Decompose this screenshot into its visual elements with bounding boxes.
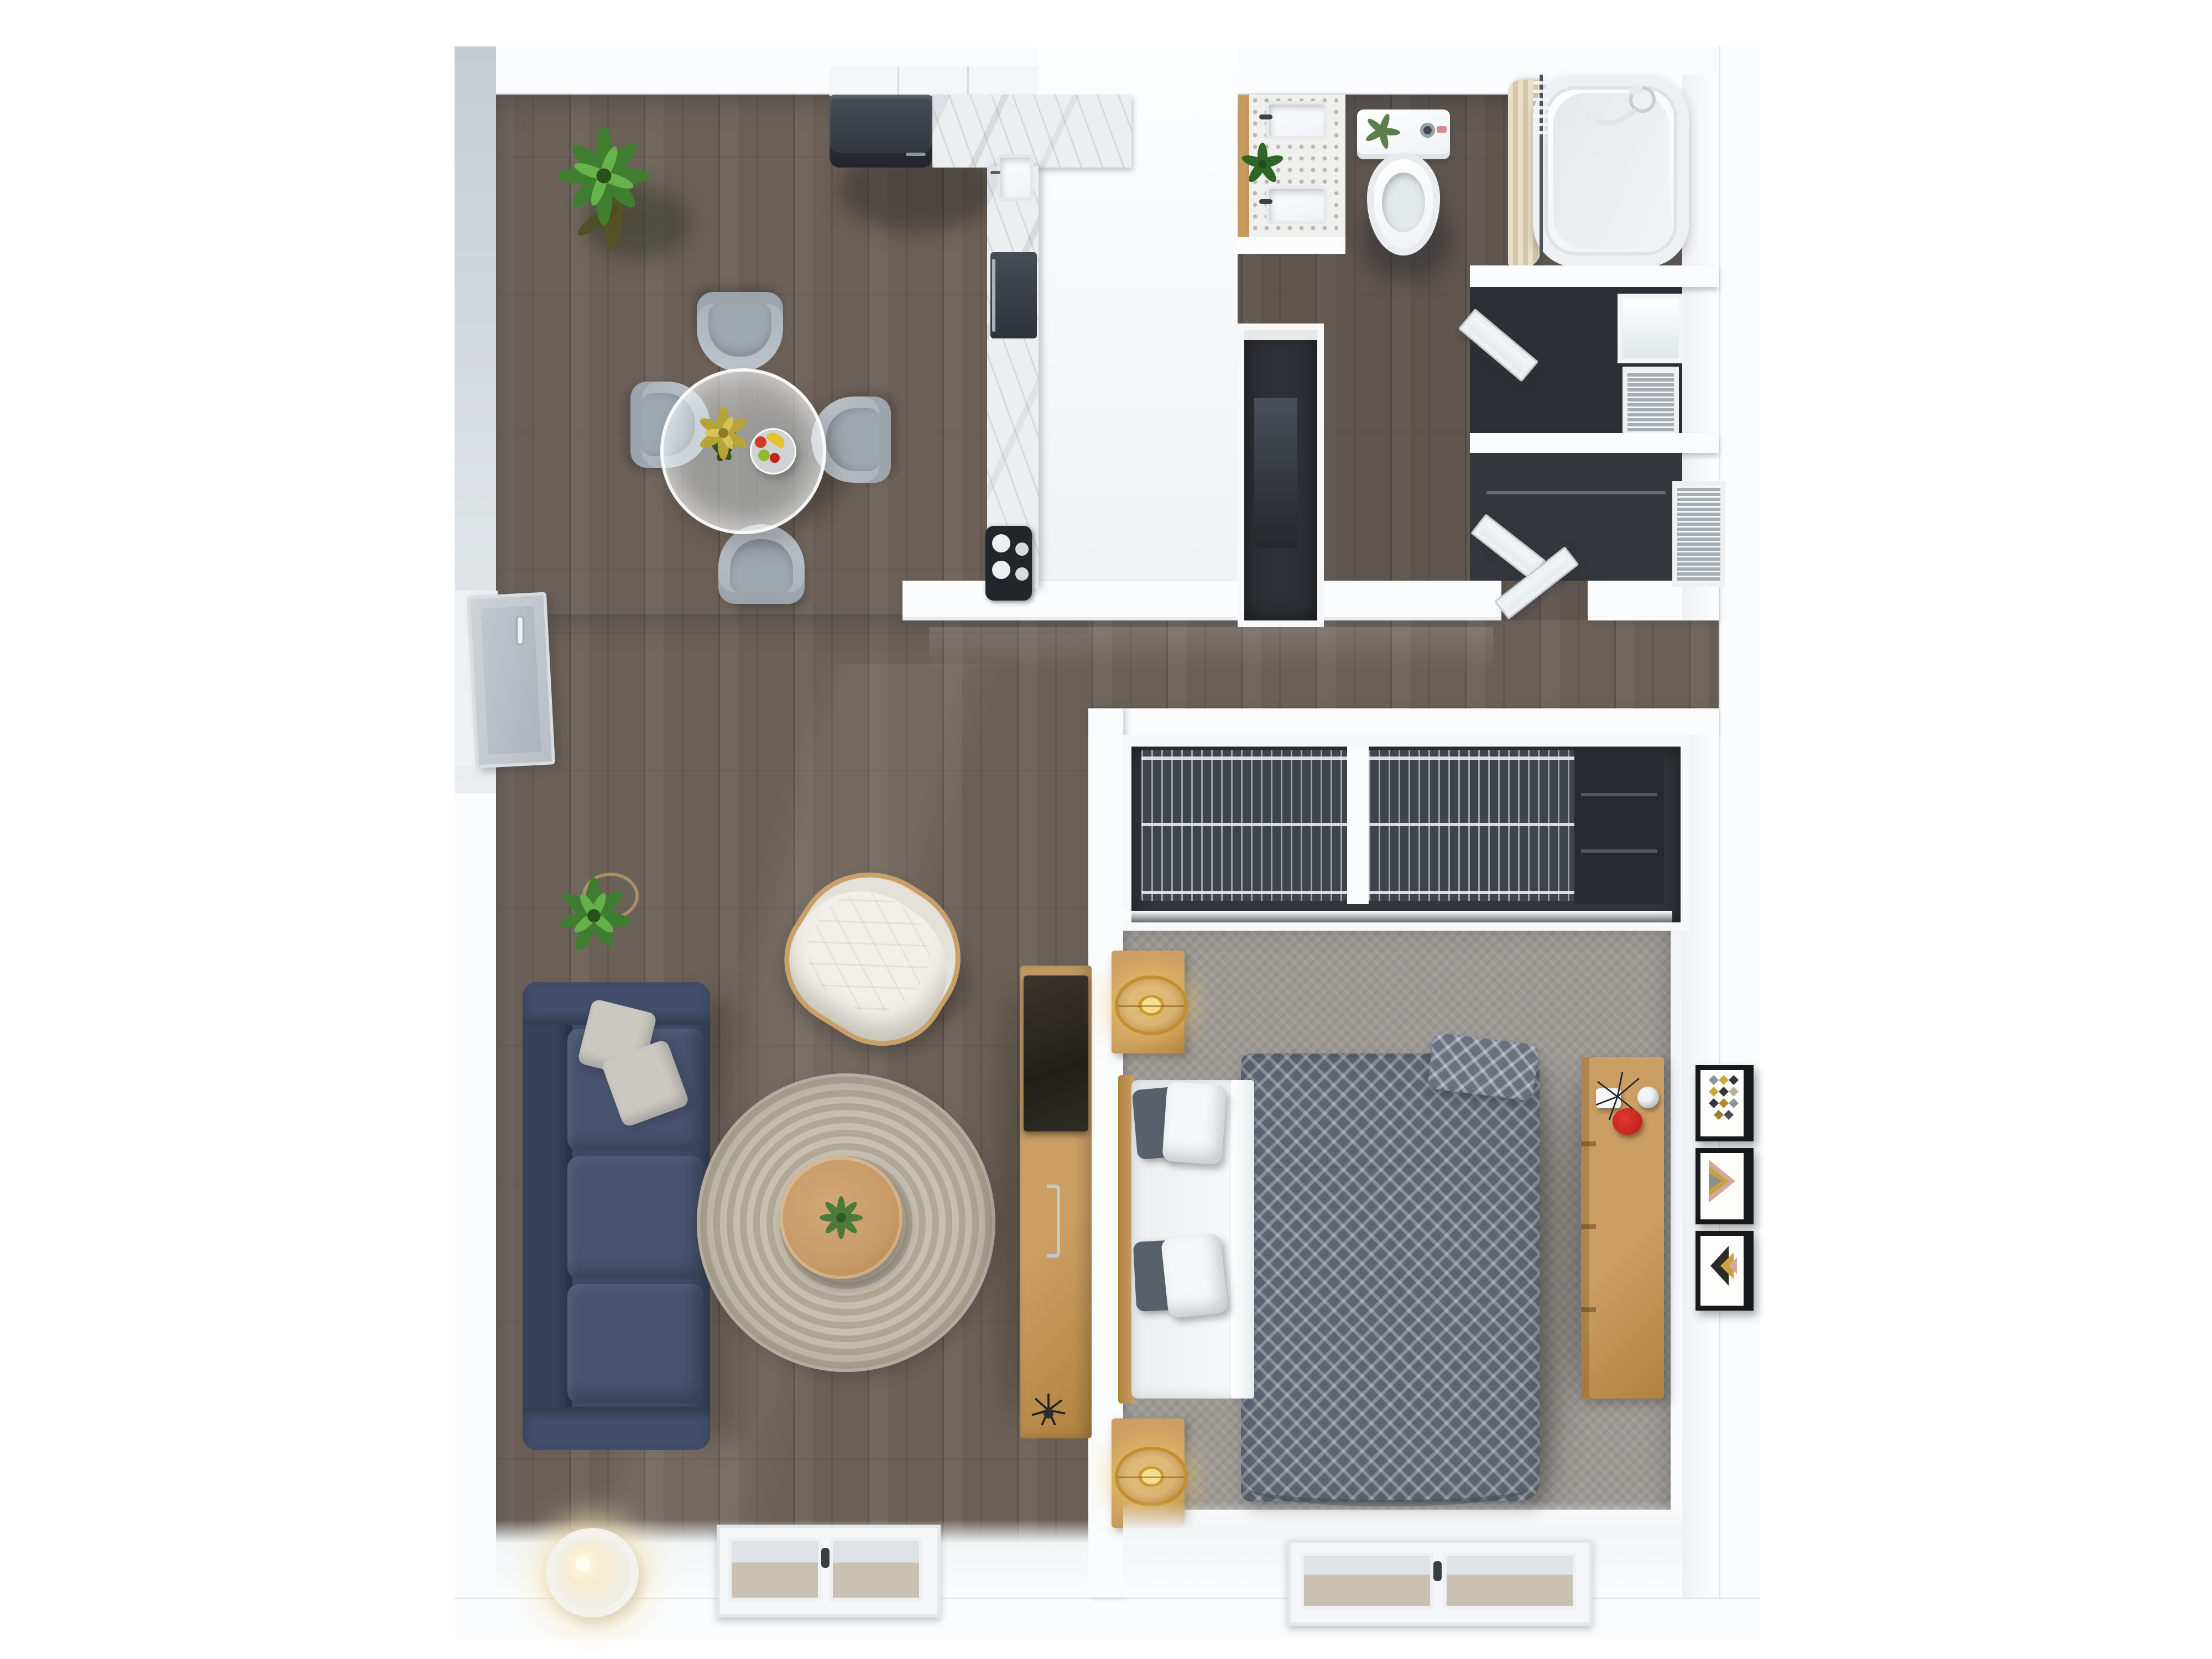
living-window-pane-left bbox=[728, 1538, 821, 1601]
dresser-drawer-groove-3 bbox=[1581, 1307, 1596, 1312]
blinds-window-upper bbox=[1623, 367, 1679, 438]
faucet-1 bbox=[1259, 114, 1272, 119]
utility-recess-panel bbox=[1254, 398, 1297, 547]
fruit-apple-green bbox=[758, 450, 770, 461]
dining-chair-bottom bbox=[718, 524, 805, 604]
wall-art-1 bbox=[1695, 1065, 1754, 1141]
upper-cabinet-seam-2 bbox=[967, 66, 969, 96]
entry-door-handle bbox=[518, 617, 523, 644]
refrigerator-handle bbox=[906, 153, 926, 156]
burner-3 bbox=[1015, 542, 1029, 556]
bedroom-window-pane-right bbox=[1443, 1553, 1576, 1609]
dresser-drawer-groove-2 bbox=[1581, 1224, 1596, 1229]
closet-sliding-panel-1 bbox=[1141, 750, 1347, 901]
toilet-flush-button bbox=[1420, 123, 1435, 138]
closet-2-shelf-line bbox=[1486, 491, 1666, 494]
living-window bbox=[717, 1525, 941, 1618]
bed-sheet-fold bbox=[1231, 1080, 1254, 1399]
toilet-spray-accent bbox=[1437, 126, 1447, 133]
table-lamp-gold-bottom bbox=[1115, 1447, 1188, 1506]
burner-1 bbox=[992, 534, 1010, 552]
sofa-backrest bbox=[523, 982, 572, 1450]
kitchen-sink bbox=[997, 154, 1034, 201]
closet-open-shelf-2 bbox=[1581, 849, 1657, 853]
small-potted-plant bbox=[547, 846, 650, 972]
wall-art-2 bbox=[1695, 1148, 1754, 1224]
refrigerator bbox=[830, 95, 932, 168]
console-decor-plant bbox=[1025, 1387, 1072, 1433]
faucet-2 bbox=[1259, 199, 1272, 204]
decor-round-vase bbox=[1637, 1087, 1659, 1108]
kitchen-faucet bbox=[990, 171, 1000, 174]
storage-wall-band-mid bbox=[1470, 433, 1719, 453]
floor-lamp bbox=[546, 1528, 639, 1618]
storage-wall-band-top bbox=[1470, 265, 1719, 287]
oven bbox=[990, 252, 1037, 338]
sofa-cushion-3 bbox=[567, 1284, 703, 1404]
floor-plan-canvas bbox=[0, 0, 2212, 1659]
wall-art-3 bbox=[1695, 1231, 1754, 1311]
living-window-pane-right bbox=[830, 1538, 922, 1601]
cooktop bbox=[985, 526, 1032, 601]
closet-sliding-panel-2 bbox=[1369, 750, 1574, 901]
table-lamp-gold-top bbox=[1115, 975, 1188, 1035]
wall-outer-right bbox=[1719, 46, 1760, 1639]
curtain-rings bbox=[1533, 78, 1550, 134]
bedroom-window bbox=[1287, 1540, 1593, 1626]
upper-cabinet-seam-1 bbox=[898, 66, 899, 96]
coffee-table-plant bbox=[816, 1193, 866, 1243]
toilet-seat-inner bbox=[1382, 173, 1425, 232]
closet-panel-divider bbox=[1347, 747, 1369, 904]
large-potted-plant bbox=[541, 119, 660, 249]
living-window-handle bbox=[821, 1548, 830, 1568]
vanity-sink-1 bbox=[1266, 101, 1327, 139]
bed-duvet bbox=[1241, 1053, 1540, 1501]
blinds-window-lower bbox=[1672, 481, 1725, 587]
bedroom-window-handle bbox=[1433, 1561, 1442, 1581]
closet-open-section bbox=[1574, 747, 1664, 904]
console-handle bbox=[1047, 1185, 1060, 1258]
toilet-tank-plant bbox=[1357, 106, 1407, 156]
entry-door bbox=[467, 592, 555, 768]
shower-fixture bbox=[1579, 80, 1666, 149]
bed-pillow-white-1 bbox=[1162, 1081, 1227, 1165]
fruit-apple-red2 bbox=[770, 453, 780, 463]
sofa-arm-bottom bbox=[523, 1407, 710, 1450]
fruit-apple-red bbox=[755, 436, 766, 448]
dresser-drawer-groove-1 bbox=[1581, 1141, 1596, 1146]
vanity-plant bbox=[1241, 143, 1284, 186]
shelf-niche bbox=[1618, 294, 1684, 363]
floor-lamp-bulb bbox=[576, 1556, 591, 1571]
wall-bedroom-top bbox=[1088, 708, 1719, 735]
flower-vase bbox=[690, 398, 757, 468]
floor-plan-page bbox=[0, 0, 2212, 1659]
burner-4 bbox=[1015, 567, 1029, 581]
bed-pillow-white-2 bbox=[1161, 1233, 1228, 1319]
vanity-sink-2 bbox=[1266, 186, 1327, 224]
tv-flatscreen bbox=[1024, 975, 1088, 1131]
vanity-end-wall bbox=[1238, 237, 1345, 254]
decor-red-dish bbox=[1613, 1108, 1642, 1135]
burner-2 bbox=[992, 561, 1010, 579]
bedroom-window-pane-left bbox=[1301, 1553, 1433, 1609]
closet-sill-glow bbox=[1123, 911, 1672, 927]
oven-handle bbox=[992, 259, 995, 332]
sofa-cushion-2 bbox=[567, 1156, 703, 1279]
closet-open-shelf-1 bbox=[1581, 793, 1657, 796]
upper-cabinets bbox=[830, 66, 1039, 96]
